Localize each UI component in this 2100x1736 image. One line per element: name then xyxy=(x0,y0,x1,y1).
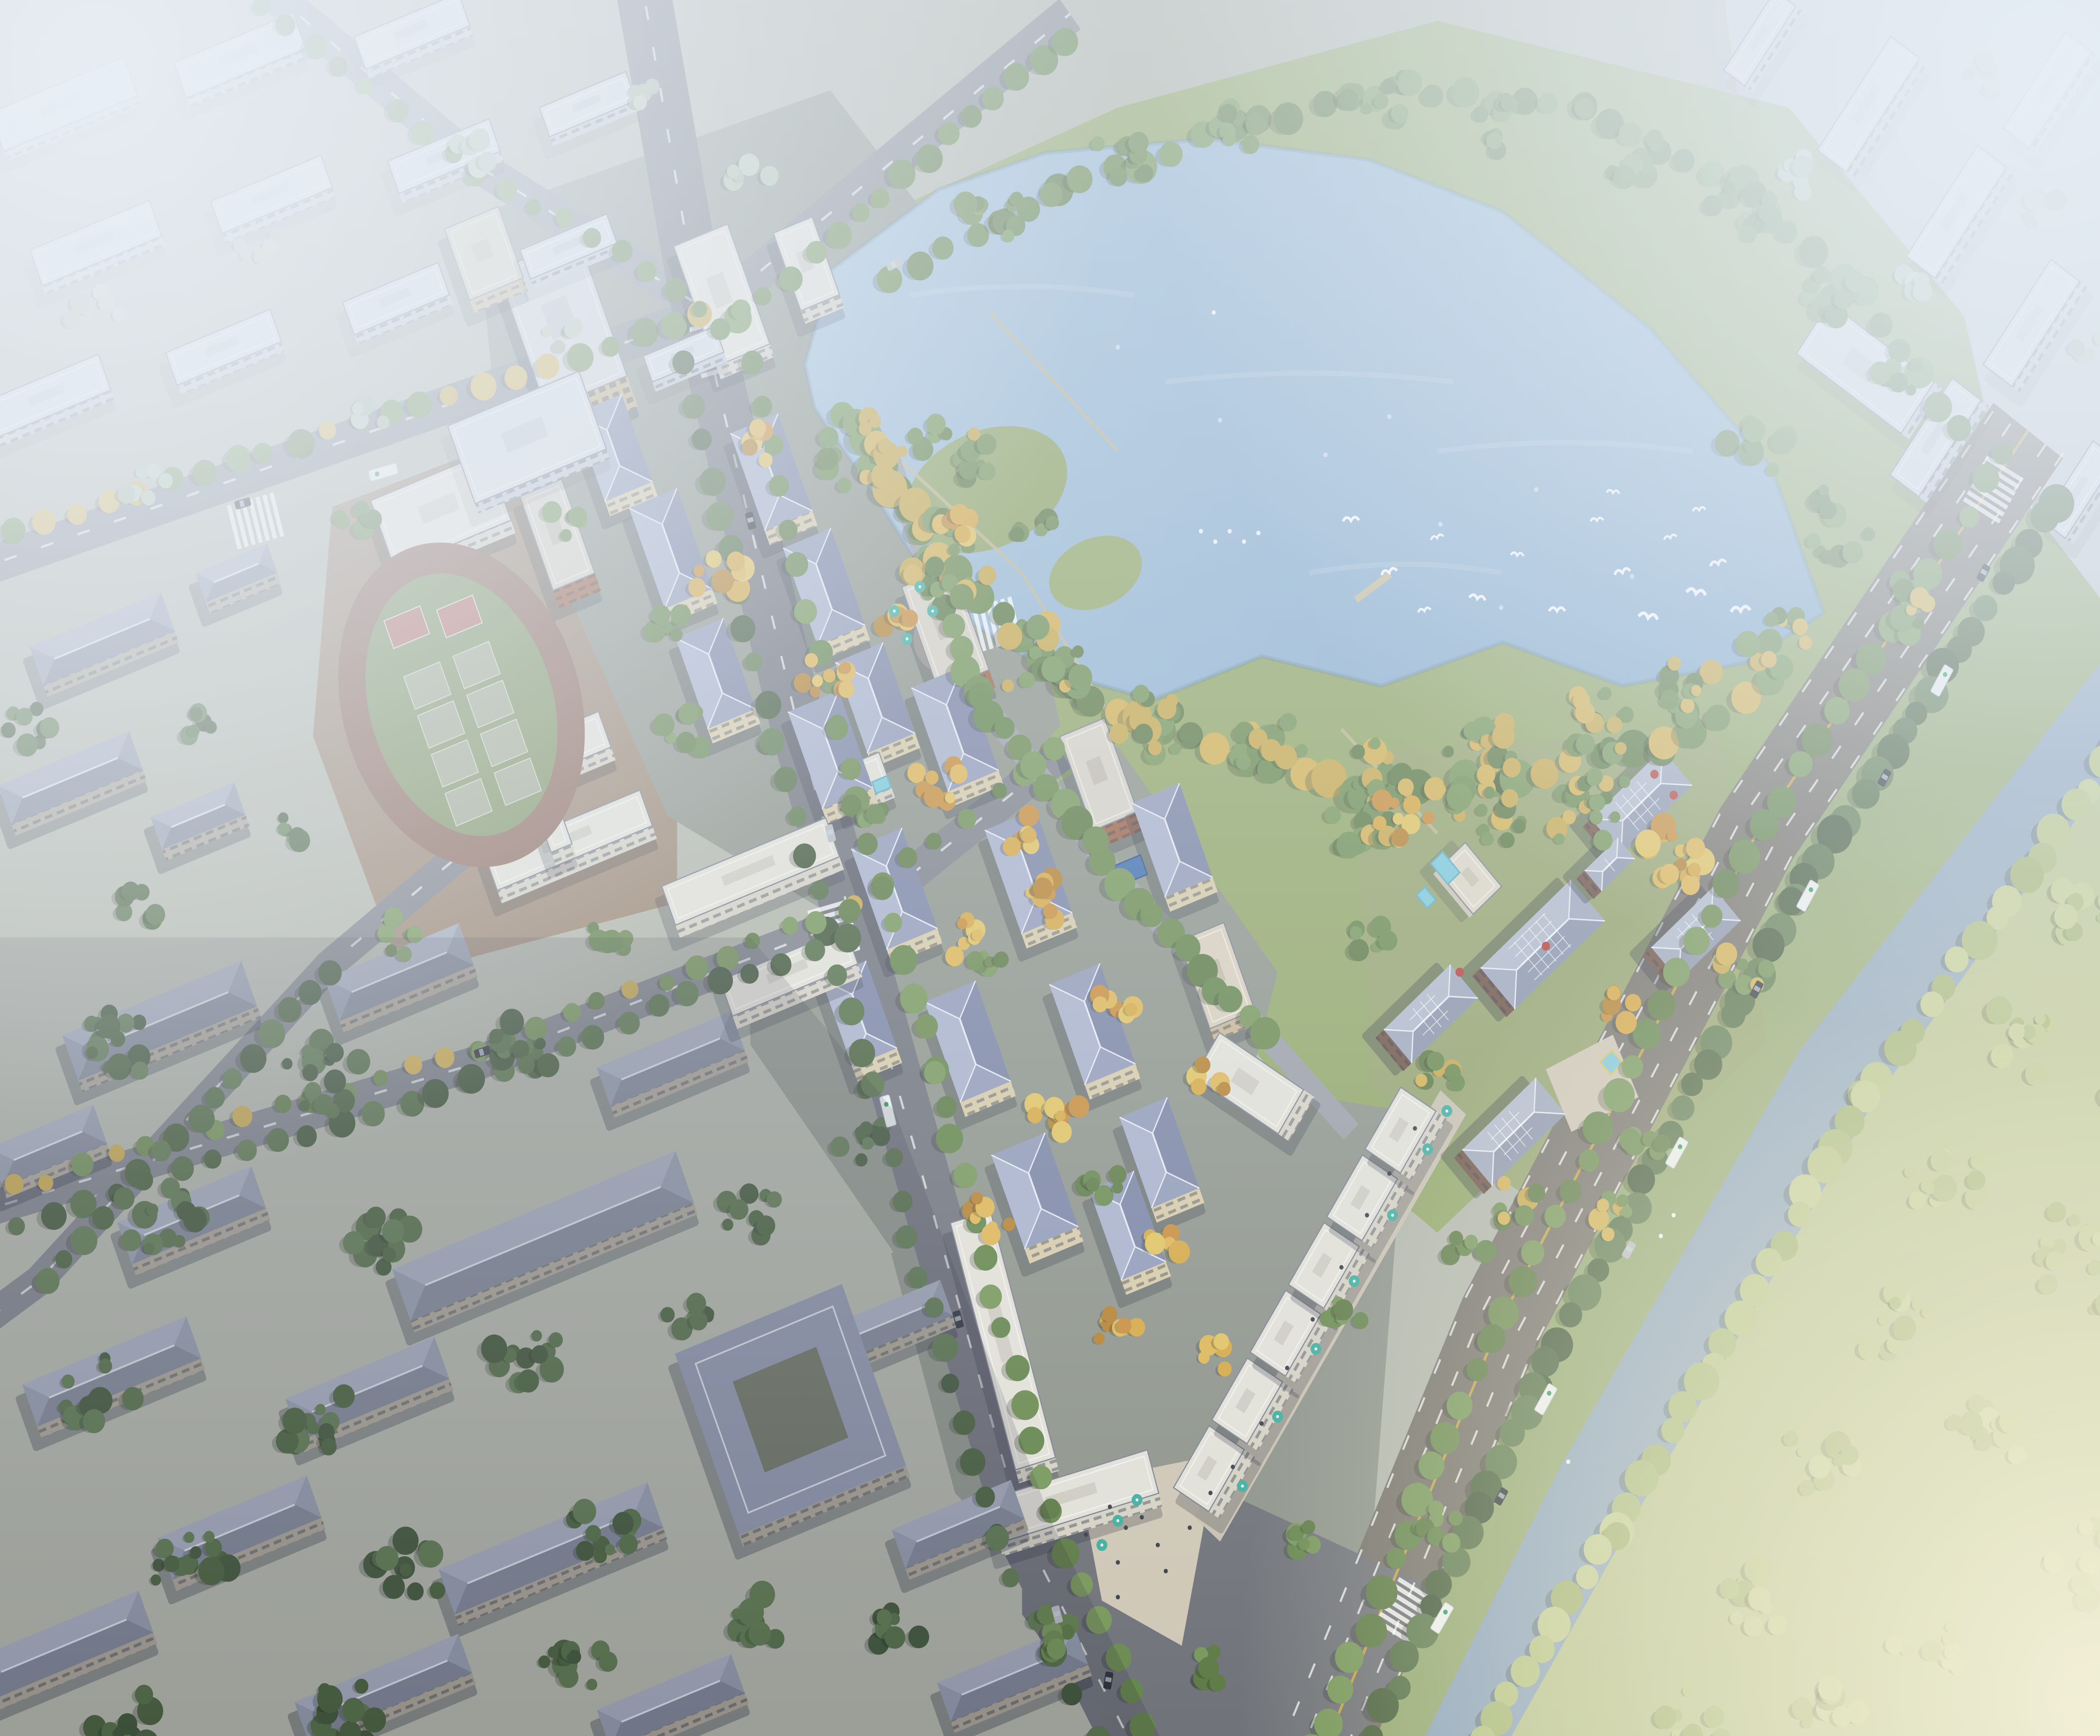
water-sparkle xyxy=(1323,452,1328,457)
pedestrian xyxy=(1413,1126,1417,1131)
duck xyxy=(1566,1459,1570,1464)
water-sparkle xyxy=(1116,345,1120,350)
pedestrian xyxy=(1108,1505,1112,1509)
water-sparkle xyxy=(1499,605,1504,610)
aerial-rendering xyxy=(0,0,2100,1736)
duck xyxy=(1256,531,1260,535)
scene-container xyxy=(0,0,2100,1736)
pedestrian xyxy=(1285,1366,1289,1370)
duck xyxy=(1199,529,1203,534)
duck xyxy=(1212,310,1216,315)
pedestrian xyxy=(1339,1265,1344,1269)
pedestrian xyxy=(1208,1491,1213,1495)
pedestrian xyxy=(1140,1515,1144,1520)
duck xyxy=(1213,539,1218,544)
terrace-umbrella xyxy=(1669,791,1678,800)
water-sparkle xyxy=(1438,522,1443,527)
pedestrian xyxy=(1311,1317,1315,1322)
pedestrian xyxy=(1084,1532,1088,1537)
pedestrian xyxy=(1116,1595,1120,1600)
duck xyxy=(1659,1234,1663,1238)
pedestrian xyxy=(1188,1526,1192,1530)
duck xyxy=(1228,529,1232,534)
pedestrian xyxy=(1231,1465,1235,1469)
terrace-umbrella xyxy=(1542,941,1550,950)
pedestrian xyxy=(1164,1569,1168,1573)
water-sparkle xyxy=(1630,574,1635,579)
duck xyxy=(1672,1213,1676,1217)
water-sparkle xyxy=(1534,487,1538,492)
water-sparkle xyxy=(1387,414,1392,419)
pedestrian xyxy=(1387,1171,1391,1176)
terrace-umbrella xyxy=(1455,968,1464,976)
terrace-umbrella xyxy=(1650,770,1659,779)
pedestrian xyxy=(1124,1526,1128,1530)
pedestrian xyxy=(1260,1421,1264,1426)
pedestrian xyxy=(1156,1543,1160,1547)
pedestrian xyxy=(1365,1213,1369,1217)
water-sparkle xyxy=(1218,418,1223,423)
pedestrian xyxy=(1116,1560,1120,1565)
duck xyxy=(1242,539,1246,544)
